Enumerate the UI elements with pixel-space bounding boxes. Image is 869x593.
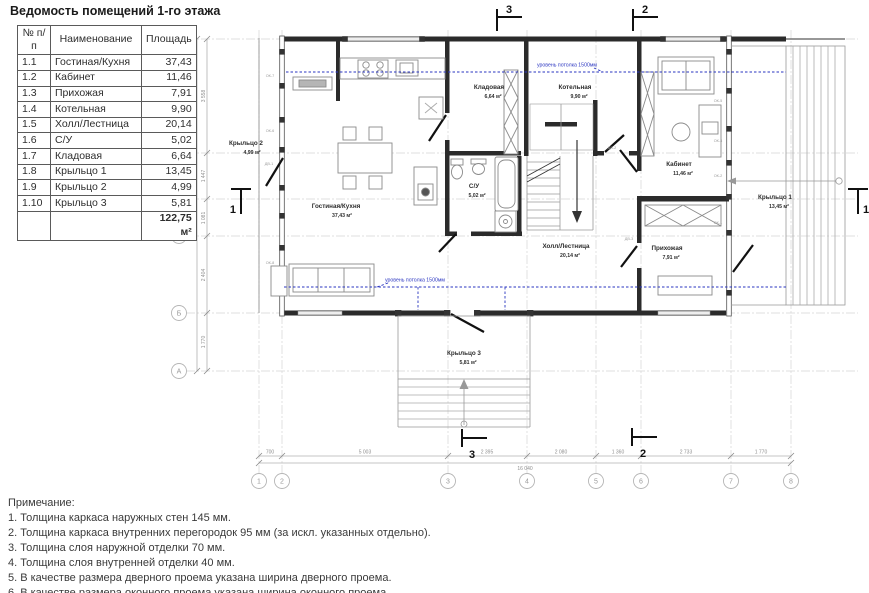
svg-text:ОК-4: ОК-4 bbox=[714, 139, 723, 143]
grid-bubbles: 1 2 3 4 5 6 7 8 Е Д Г В Б А bbox=[172, 32, 799, 489]
notes-title: Примечание: bbox=[8, 496, 431, 511]
table-row: 1.8Крыльцо 113,45 bbox=[18, 164, 197, 180]
section-marks: 3 2 1 1 3 2 bbox=[230, 4, 869, 461]
ceiling-label-bottom: уровень потолка 1500мм bbox=[385, 278, 445, 284]
svg-text:5 003: 5 003 bbox=[359, 450, 372, 456]
svg-text:700: 700 bbox=[266, 450, 275, 456]
note-item: 3. Толщина слоя наружной отделки 70 мм. bbox=[8, 541, 431, 556]
section-mark-2-top: 2 bbox=[642, 4, 648, 16]
svg-text:5,02 м²: 5,02 м² bbox=[468, 193, 485, 199]
room-label-hall: Холл/Лестница bbox=[542, 243, 590, 250]
table-row: 1.3Прихожая7,91 bbox=[18, 86, 197, 102]
table-row: 1.9Крыльцо 24,99 bbox=[18, 180, 197, 196]
svg-text:2 733: 2 733 bbox=[680, 450, 693, 456]
notes: Примечание: 1. Толщина каркаса наружных … bbox=[8, 496, 431, 593]
room-label-porch3: Крыльцо 3 bbox=[447, 350, 481, 357]
svg-text:ДВ-1: ДВ-1 bbox=[265, 162, 273, 166]
svg-text:6: 6 bbox=[639, 479, 643, 486]
section-mark-1-left: 1 bbox=[230, 204, 236, 216]
room-label-entry: Прихожая bbox=[651, 245, 682, 252]
svg-text:2 404: 2 404 bbox=[201, 269, 207, 282]
room-label-storage: Кладовая bbox=[474, 84, 504, 91]
col-header-area: Площадь bbox=[142, 26, 197, 55]
svg-text:8: 8 bbox=[789, 479, 793, 486]
svg-text:ДВ-3: ДВ-3 bbox=[625, 237, 633, 241]
svg-text:2: 2 bbox=[280, 479, 284, 486]
schedule-table: № п/п Наименование Площадь 1.1Гостиная/К… bbox=[17, 25, 197, 241]
schedule-title: Ведомость помещений 1-го этажа bbox=[10, 4, 220, 18]
svg-text:16 040: 16 040 bbox=[517, 466, 533, 472]
svg-text:1: 1 bbox=[257, 479, 261, 486]
col-header-num: № п/п bbox=[18, 26, 51, 55]
room-label-boiler: Котельная bbox=[559, 84, 592, 91]
svg-text:1 770: 1 770 bbox=[201, 336, 207, 349]
drawing-sheet: 700 5 003 2 395 2 080 1 360 2 733 1 770 … bbox=[0, 0, 869, 593]
svg-text:ОК-1: ОК-1 bbox=[714, 221, 723, 225]
room-label-porch2: Крыльцо 2 bbox=[229, 140, 263, 147]
svg-text:7: 7 bbox=[729, 479, 733, 486]
svg-text:1 770: 1 770 bbox=[755, 450, 768, 456]
svg-text:20,14 м²: 20,14 м² bbox=[560, 253, 580, 259]
schedule-total-row: 122,75 м² bbox=[18, 211, 197, 240]
svg-text:1 360: 1 360 bbox=[612, 450, 625, 456]
svg-text:9,90 м²: 9,90 м² bbox=[570, 94, 587, 100]
svg-text:ОК-6: ОК-6 bbox=[266, 129, 275, 133]
porch1-deck bbox=[727, 46, 845, 305]
svg-text:4: 4 bbox=[525, 479, 529, 486]
porch3-steps bbox=[398, 316, 530, 427]
note-item: 1. Толщина каркаса наружных стен 145 мм. bbox=[8, 511, 431, 526]
note-item: 4. Толщина слоя внутренней отделки 40 мм… bbox=[8, 556, 431, 571]
section-mark-1-right: 1 bbox=[863, 204, 869, 216]
section-mark-2-bottom: 2 bbox=[640, 448, 646, 460]
svg-text:3: 3 bbox=[446, 479, 450, 486]
svg-text:37,43 м²: 37,43 м² bbox=[332, 213, 352, 219]
table-row: 1.5Холл/Лестница20,14 bbox=[18, 117, 197, 133]
section-mark-3-top: 3 bbox=[506, 4, 512, 16]
svg-text:ДВ-2: ДВ-2 bbox=[608, 146, 616, 150]
svg-text:А: А bbox=[177, 369, 182, 376]
grid-lines bbox=[186, 30, 858, 473]
svg-text:4,99 м²: 4,99 м² bbox=[243, 150, 260, 156]
svg-text:ОК-8: ОК-8 bbox=[266, 261, 275, 265]
schedule-total: 122,75 м² bbox=[142, 211, 197, 240]
note-item: 6. В качестве размера оконного проема ук… bbox=[8, 586, 431, 593]
room-label-wc: С/У bbox=[469, 183, 479, 190]
svg-text:5,81 м²: 5,81 м² bbox=[459, 360, 476, 366]
svg-text:ОК-2: ОК-2 bbox=[714, 174, 723, 178]
svg-text:5: 5 bbox=[594, 479, 598, 486]
col-header-name: Наименование bbox=[51, 26, 142, 55]
table-row: 1.7Кладовая6,64 bbox=[18, 149, 197, 165]
table-row: 1.10Крыльцо 35,81 bbox=[18, 196, 197, 212]
svg-text:ОК-7: ОК-7 bbox=[266, 74, 275, 78]
room-label-porch1: Крыльцо 1 bbox=[758, 194, 792, 201]
note-item: 2. Толщина каркаса внутренних перегородо… bbox=[8, 526, 431, 541]
svg-text:11,46 м²: 11,46 м² bbox=[673, 171, 693, 177]
room-schedule: Ведомость помещений 1-го этажа № п/п Наи… bbox=[8, 4, 220, 241]
table-row: 1.1Гостиная/Кухня37,43 bbox=[18, 55, 197, 71]
table-row: 1.4Котельная9,90 bbox=[18, 102, 197, 118]
table-row: 1.2Кабинет11,46 bbox=[18, 70, 197, 86]
svg-text:2 080: 2 080 bbox=[555, 450, 568, 456]
ceiling-label-top: уровень потолка 1500мм bbox=[537, 63, 597, 69]
table-row: 1.6С/У5,02 bbox=[18, 133, 197, 149]
room-label-cabinet: Кабинет bbox=[666, 160, 692, 168]
room-label-living: Гостиная/Кухня bbox=[312, 203, 361, 210]
svg-text:13,45 м²: 13,45 м² bbox=[769, 204, 789, 210]
svg-text:ОК-5: ОК-5 bbox=[714, 99, 723, 103]
svg-text:6,64 м²: 6,64 м² bbox=[484, 94, 501, 100]
svg-text:7,91 м²: 7,91 м² bbox=[662, 255, 679, 261]
svg-text:Б: Б bbox=[177, 311, 182, 318]
section-mark-3-bottom: 3 bbox=[469, 449, 475, 461]
note-item: 5. В качестве размера дверного проема ук… bbox=[8, 571, 431, 586]
svg-text:2 395: 2 395 bbox=[481, 450, 494, 456]
schedule-header-row: № п/п Наименование Площадь bbox=[18, 26, 197, 55]
